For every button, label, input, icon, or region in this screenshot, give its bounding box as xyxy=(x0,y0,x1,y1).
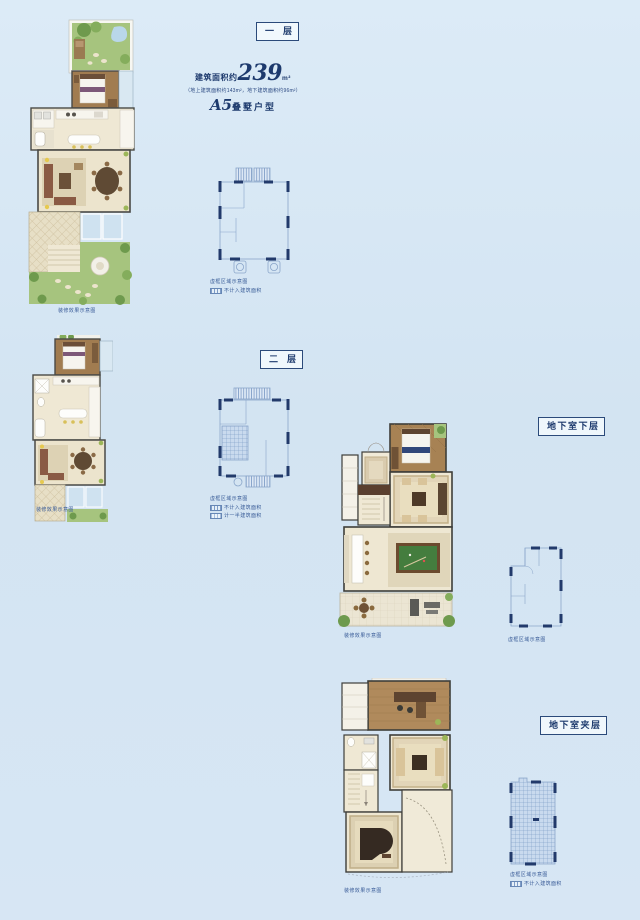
floorplan-render-basement-mezzanine xyxy=(338,678,456,880)
area-title: 建筑面积约239m² xyxy=(162,60,324,86)
piano-room xyxy=(346,812,402,872)
terrace-garden xyxy=(29,212,132,305)
unfinished-area xyxy=(402,790,452,872)
floorplan-schematic-level2 xyxy=(206,386,302,492)
unit-model: A5叠墅户型 xyxy=(162,96,324,114)
hatch-swatch xyxy=(210,288,222,294)
foyer xyxy=(362,443,390,485)
floor-label-level2: 二层 xyxy=(260,350,303,369)
floorplan-render-level1 xyxy=(28,13,140,306)
page-title: 建筑面积约239m² （地上建筑面积约143m²，地下建筑面积约96m²） A5… xyxy=(162,60,324,114)
schematic-caption-basement-lower: 虚框区域示意图 xyxy=(508,637,546,643)
living-dining xyxy=(35,440,105,485)
hatch-swatch xyxy=(210,505,222,511)
render-caption-basement-lower: 装修效果示意图 xyxy=(344,633,382,639)
closet xyxy=(342,683,368,730)
bedroom xyxy=(72,71,133,108)
lounge xyxy=(390,735,450,790)
kitchen-bath xyxy=(31,108,134,150)
half-hatch-swatch xyxy=(210,513,222,519)
study xyxy=(368,678,450,730)
floorplan-render-basement-lower xyxy=(338,421,456,631)
legend-not-counted-basement-mezzanine: 不计入建筑面积 xyxy=(510,880,562,887)
stairs xyxy=(344,770,378,812)
storage-left xyxy=(342,455,358,520)
legend-half-counted-level2: 计一半建筑面积 xyxy=(210,512,262,519)
patio xyxy=(338,593,455,627)
floorplan-schematic-level1 xyxy=(206,166,302,278)
stairs xyxy=(358,485,390,525)
floorplan-brochure-page: 一层 建筑面积约239m² （地上建筑面积约143m²，地下建筑面积约96m²）… xyxy=(0,0,640,920)
hatch-swatch xyxy=(510,881,522,887)
schematic-walls xyxy=(510,547,563,628)
floorplan-schematic-basement-lower xyxy=(503,540,567,634)
lightwell-dashed-line xyxy=(348,872,448,878)
roof-garden xyxy=(69,20,133,73)
render-caption-level2: 装修效果示意图 xyxy=(36,507,74,513)
kitchen-bath xyxy=(33,375,100,440)
legend-not-counted-level1: 不计入建筑面积 xyxy=(210,287,262,294)
schematic-walls xyxy=(219,181,290,261)
schematic-caption-level2: 虚框区域示意图 xyxy=(210,496,248,502)
floor-label-level1: 一层 xyxy=(256,22,299,41)
legend-not-counted-level2: 不计入建筑面积 xyxy=(210,504,262,511)
bedroom xyxy=(390,424,446,472)
bathroom xyxy=(344,735,378,770)
render-caption-level1: 装修效果示意图 xyxy=(58,308,96,314)
bedroom xyxy=(55,335,113,375)
floor-label-basement-lower: 地下室下层 xyxy=(538,417,605,436)
living-dining xyxy=(38,150,130,212)
schematic-caption-basement-mezzanine: 虚框区域示意图 xyxy=(510,872,548,878)
recreation-room xyxy=(344,527,452,591)
area-detail: （地上建筑面积约143m²，地下建筑面积约96m²） xyxy=(162,87,324,94)
floor-label-basement-mezzanine: 地下室夹层 xyxy=(540,716,607,735)
schematic-caption-level1: 虚框区域示意图 xyxy=(210,279,248,285)
floorplan-render-level2 xyxy=(29,335,113,523)
floorplan-schematic-basement-mezzanine xyxy=(507,774,563,868)
render-caption-basement-mezzanine: 装修效果示意图 xyxy=(344,888,382,894)
family-room xyxy=(390,472,452,527)
terrace xyxy=(35,485,108,522)
